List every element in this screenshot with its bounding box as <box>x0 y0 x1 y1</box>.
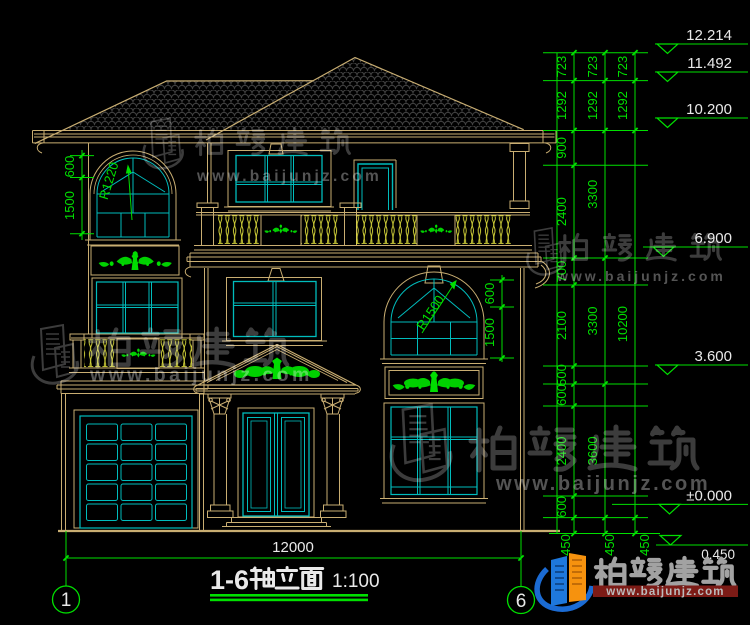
svg-text:450: 450 <box>558 534 573 556</box>
svg-text:900: 900 <box>554 137 569 159</box>
svg-text:www.baijunjz.com: www.baijunjz.com <box>556 268 726 284</box>
svg-text:www.baijunjz.com: www.baijunjz.com <box>196 168 382 185</box>
svg-text:3.600: 3.600 <box>694 348 732 365</box>
svg-text:10.200: 10.200 <box>686 101 732 118</box>
svg-text:www.baijunjz.com: www.baijunjz.com <box>495 473 710 495</box>
svg-text:1500: 1500 <box>62 191 77 220</box>
svg-text:1292: 1292 <box>585 91 600 120</box>
svg-text:600: 600 <box>554 384 569 406</box>
svg-text:600: 600 <box>62 156 77 178</box>
svg-text:11.492: 11.492 <box>687 55 732 72</box>
svg-text:1500: 1500 <box>482 318 497 347</box>
svg-text:600: 600 <box>482 283 497 305</box>
svg-text:2400: 2400 <box>554 197 569 226</box>
svg-text:3300: 3300 <box>585 180 600 209</box>
svg-text:723: 723 <box>585 56 600 78</box>
svg-text:2100: 2100 <box>554 311 569 340</box>
svg-text:3300: 3300 <box>585 307 600 336</box>
svg-text:6: 6 <box>516 591 527 612</box>
svg-text:500: 500 <box>554 364 569 386</box>
svg-text:450: 450 <box>602 534 617 556</box>
svg-text:1292: 1292 <box>615 91 630 120</box>
svg-text:1:100: 1:100 <box>332 571 380 592</box>
svg-text:1-6: 1-6 <box>210 565 249 595</box>
svg-text:723: 723 <box>554 56 569 78</box>
svg-text:www.baijunjz.com: www.baijunjz.com <box>89 364 313 386</box>
svg-text:12000: 12000 <box>272 539 314 556</box>
svg-text:1: 1 <box>61 590 72 611</box>
svg-text:600: 600 <box>554 496 569 518</box>
svg-text:www.baijunjz.com: www.baijunjz.com <box>605 586 724 598</box>
svg-text:1292: 1292 <box>554 91 569 120</box>
svg-text:723: 723 <box>615 56 630 78</box>
svg-text:450: 450 <box>637 534 652 556</box>
svg-text:10200: 10200 <box>615 306 630 342</box>
svg-text:12.214: 12.214 <box>686 27 732 44</box>
